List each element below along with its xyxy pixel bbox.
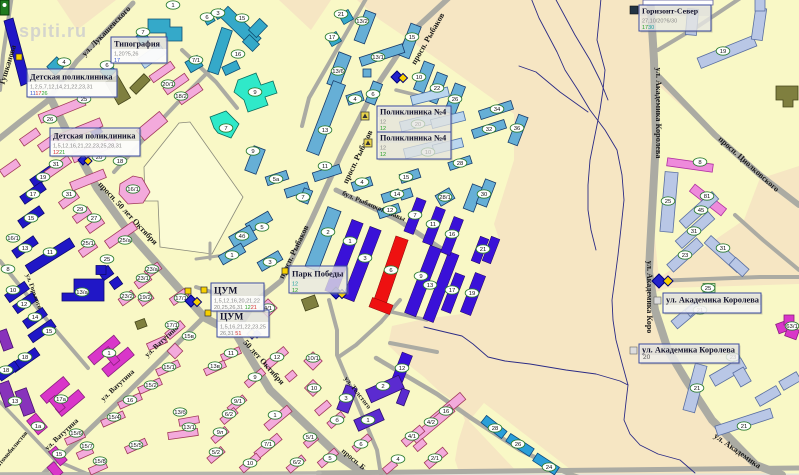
svg-text:ул. Академика Королева: ул. Академика Королева xyxy=(666,296,760,305)
svg-text:1а: 1а xyxy=(35,424,42,430)
svg-text:1221: 1221 xyxy=(53,150,65,156)
svg-text:28/1: 28/1 xyxy=(439,195,450,201)
svg-text:19: 19 xyxy=(469,291,476,297)
svg-text:15: 15 xyxy=(239,16,246,22)
svg-text:11: 11 xyxy=(47,250,53,256)
svg-text:30: 30 xyxy=(481,192,488,198)
svg-text:23/а: 23/а xyxy=(146,267,158,273)
svg-text:12: 12 xyxy=(399,366,406,372)
svg-text:7: 7 xyxy=(413,213,416,219)
svg-text:25: 25 xyxy=(665,199,672,205)
svg-text:7: 7 xyxy=(224,126,227,132)
svg-text:11: 11 xyxy=(430,222,436,228)
svg-text:7: 7 xyxy=(301,195,304,201)
svg-text:2: 2 xyxy=(326,230,329,236)
svg-text:Типография: Типография xyxy=(114,40,161,49)
svg-text:9: 9 xyxy=(253,90,256,96)
svg-text:36: 36 xyxy=(514,126,521,132)
svg-text:9: 9 xyxy=(251,149,254,155)
svg-text:1: 1 xyxy=(171,3,174,9)
svg-text:10/1: 10/1 xyxy=(307,356,318,362)
svg-text:16: 16 xyxy=(127,398,134,404)
svg-text:Детская поликлиника: Детская поликлиника xyxy=(30,73,112,82)
svg-text:ул. Академика Коро: ул. Академика Коро xyxy=(645,261,654,334)
svg-text:7/1: 7/1 xyxy=(264,442,272,448)
svg-text:9л: 9л xyxy=(217,430,224,436)
svg-text:31: 31 xyxy=(66,192,73,198)
svg-text:23: 23 xyxy=(682,253,689,259)
svg-text:12: 12 xyxy=(380,126,386,132)
svg-text:6/2: 6/2 xyxy=(225,412,233,418)
svg-text:4/1: 4/1 xyxy=(408,434,416,440)
svg-text:17: 17 xyxy=(329,35,336,41)
svg-text:20,25,26,31 1221: 20,25,26,31 1221 xyxy=(214,305,257,311)
svg-text:14: 14 xyxy=(32,315,39,321)
svg-text:5/1: 5/1 xyxy=(306,435,314,441)
svg-text:19/2: 19/2 xyxy=(139,295,150,301)
svg-text:15/4: 15/4 xyxy=(108,415,120,421)
svg-text:1: 1 xyxy=(348,239,351,245)
svg-text:15/6: 15/6 xyxy=(70,431,82,437)
svg-text:1,2,5,7,12,14,21,22,23,31: 1,2,5,7,12,14,21,22,23,31 xyxy=(30,85,93,91)
svg-text:5а: 5а xyxy=(273,177,280,183)
svg-text:18/2: 18/2 xyxy=(175,94,186,100)
svg-text:12: 12 xyxy=(292,288,298,294)
svg-text:28: 28 xyxy=(492,426,499,432)
svg-text:11: 11 xyxy=(228,351,234,357)
svg-text:10: 10 xyxy=(247,461,254,467)
svg-text:12: 12 xyxy=(387,208,394,214)
svg-text:9/1: 9/1 xyxy=(234,399,242,405)
svg-text:Детская поликлиника: Детская поликлиника xyxy=(53,132,135,141)
svg-text:25/а: 25/а xyxy=(119,238,131,244)
svg-text:15: 15 xyxy=(46,329,53,335)
svg-text:1730: 1730 xyxy=(642,25,654,31)
svg-text:20/1: 20/1 xyxy=(162,82,173,88)
svg-text:18: 18 xyxy=(117,159,124,165)
svg-text:13/2: 13/2 xyxy=(356,19,367,25)
svg-text:31: 31 xyxy=(720,246,727,252)
svg-text:1: 1 xyxy=(107,351,110,357)
svg-text:1: 1 xyxy=(230,253,233,259)
svg-text:32: 32 xyxy=(486,127,493,133)
svg-text:17/1: 17/1 xyxy=(166,323,177,329)
svg-text:spiti.ru: spiti.ru xyxy=(19,21,87,41)
svg-text:9: 9 xyxy=(253,375,256,381)
svg-text:21: 21 xyxy=(741,424,748,430)
svg-text:15: 15 xyxy=(409,35,416,41)
svg-text:15/8: 15/8 xyxy=(94,459,106,465)
svg-text:23/1: 23/1 xyxy=(137,276,148,282)
svg-text:7/1: 7/1 xyxy=(192,58,200,64)
svg-text:ул. Академика Королева: ул. Академика Королева xyxy=(654,68,663,159)
svg-text:12: 12 xyxy=(380,146,386,152)
svg-text:19: 19 xyxy=(720,49,727,55)
svg-text:15/2: 15/2 xyxy=(145,383,156,389)
svg-text:9: 9 xyxy=(419,274,422,280)
svg-text:13: 13 xyxy=(322,128,329,134)
svg-text:81: 81 xyxy=(704,194,711,200)
svg-text:13/1: 13/1 xyxy=(372,55,383,61)
svg-text:2: 2 xyxy=(381,384,384,390)
svg-text:2/1: 2/1 xyxy=(431,456,439,462)
svg-text:16: 16 xyxy=(443,409,450,415)
svg-text:15/5: 15/5 xyxy=(130,443,142,449)
svg-text:63/1: 63/1 xyxy=(786,324,797,330)
svg-text:7: 7 xyxy=(141,30,144,36)
svg-text:111726: 111726 xyxy=(30,91,48,97)
svg-text:ЦУМ: ЦУМ xyxy=(220,313,243,323)
svg-text:27: 27 xyxy=(91,216,98,222)
svg-text:ул. Академика Королева: ул. Академика Королева xyxy=(642,346,736,355)
svg-text:13: 13 xyxy=(12,399,19,405)
svg-text:15: 15 xyxy=(403,175,410,181)
svg-text:13в: 13в xyxy=(210,364,220,370)
svg-text:22: 22 xyxy=(434,86,441,92)
svg-text:26: 26 xyxy=(47,117,54,123)
svg-text:Парк Победы: Парк Победы xyxy=(292,270,344,279)
svg-text:31: 31 xyxy=(691,229,698,235)
svg-text:ЦУМ: ЦУМ xyxy=(214,287,237,297)
svg-text:16/1: 16/1 xyxy=(7,236,18,242)
svg-text:17а: 17а xyxy=(56,397,67,403)
svg-text:27,10/20?6/30: 27,10/20?6/30 xyxy=(642,19,677,25)
svg-text:15в: 15в xyxy=(184,334,194,340)
svg-text:4б: 4б xyxy=(239,234,246,240)
svg-text:25: 25 xyxy=(104,257,111,263)
svg-text:13: 13 xyxy=(427,283,434,289)
svg-text:12: 12 xyxy=(21,302,28,308)
svg-text:17: 17 xyxy=(114,58,120,64)
svg-text:1: 1 xyxy=(273,413,276,419)
svg-text:26,31 51: 26,31 51 xyxy=(220,331,241,337)
svg-text:1,5,12,16,20,21,22: 1,5,12,16,20,21,22 xyxy=(214,299,260,305)
svg-text:25: 25 xyxy=(705,286,712,292)
svg-text:24: 24 xyxy=(546,465,553,471)
svg-text:15: 15 xyxy=(56,452,63,458)
svg-text:11: 11 xyxy=(322,164,328,170)
svg-text:13/а: 13/а xyxy=(76,290,88,296)
svg-text:16/1: 16/1 xyxy=(127,187,138,193)
svg-text:17: 17 xyxy=(449,288,456,294)
svg-text:1: 1 xyxy=(366,418,369,424)
svg-text:6/2: 6/2 xyxy=(293,460,301,466)
svg-text:10: 10 xyxy=(10,288,17,294)
svg-text:1,5,12,16,21,22,23,25,28,31: 1,5,12,16,21,22,23,25,28,31 xyxy=(53,144,122,150)
svg-text:45: 45 xyxy=(698,208,705,214)
svg-text:12: 12 xyxy=(380,152,386,158)
svg-text:26: 26 xyxy=(452,97,459,103)
svg-text:15/1: 15/1 xyxy=(163,365,174,371)
svg-text:13/6: 13/6 xyxy=(332,69,344,75)
svg-text:12: 12 xyxy=(274,355,281,361)
svg-text:29: 29 xyxy=(77,207,84,213)
svg-text:19: 19 xyxy=(40,175,47,181)
svg-text:21: 21 xyxy=(338,12,345,18)
svg-text:Поликлиника №4: Поликлиника №4 xyxy=(380,108,446,117)
svg-text:20: 20 xyxy=(643,354,651,361)
svg-text:18: 18 xyxy=(3,368,10,374)
svg-text:28: 28 xyxy=(457,161,464,167)
svg-text:5/2: 5/2 xyxy=(212,450,220,456)
svg-text:14: 14 xyxy=(394,192,401,198)
svg-text:17: 17 xyxy=(30,192,37,198)
svg-text:10: 10 xyxy=(311,386,318,392)
svg-text:15/7: 15/7 xyxy=(81,444,92,450)
svg-text:21: 21 xyxy=(694,386,701,392)
svg-text:16: 16 xyxy=(235,52,242,58)
svg-text:26: 26 xyxy=(515,442,522,448)
svg-text:25/1: 25/1 xyxy=(82,241,93,247)
svg-text:Горизонт-Север: Горизонт-Север xyxy=(642,7,699,16)
svg-text:1,20?5,26: 1,20?5,26 xyxy=(114,52,138,58)
svg-text:15: 15 xyxy=(28,216,35,222)
svg-text:13: 13 xyxy=(22,246,29,252)
svg-text:13/б: 13/б xyxy=(174,410,186,416)
svg-text:34: 34 xyxy=(494,107,501,113)
svg-text:1,5,16,21,22,23,25: 1,5,16,21,22,23,25 xyxy=(220,325,266,331)
svg-text:21: 21 xyxy=(480,247,487,253)
svg-text:13/1: 13/1 xyxy=(183,425,194,431)
svg-text:18: 18 xyxy=(22,355,29,361)
svg-text:12: 12 xyxy=(380,120,386,126)
svg-text:31: 31 xyxy=(53,162,60,168)
svg-text:4/2: 4/2 xyxy=(427,420,435,426)
svg-text:10: 10 xyxy=(416,75,423,81)
svg-text:16: 16 xyxy=(449,232,456,238)
svg-text:23/2: 23/2 xyxy=(121,294,132,300)
svg-text:12: 12 xyxy=(292,282,298,288)
svg-text:Поликлиника №4: Поликлиника №4 xyxy=(380,134,446,143)
